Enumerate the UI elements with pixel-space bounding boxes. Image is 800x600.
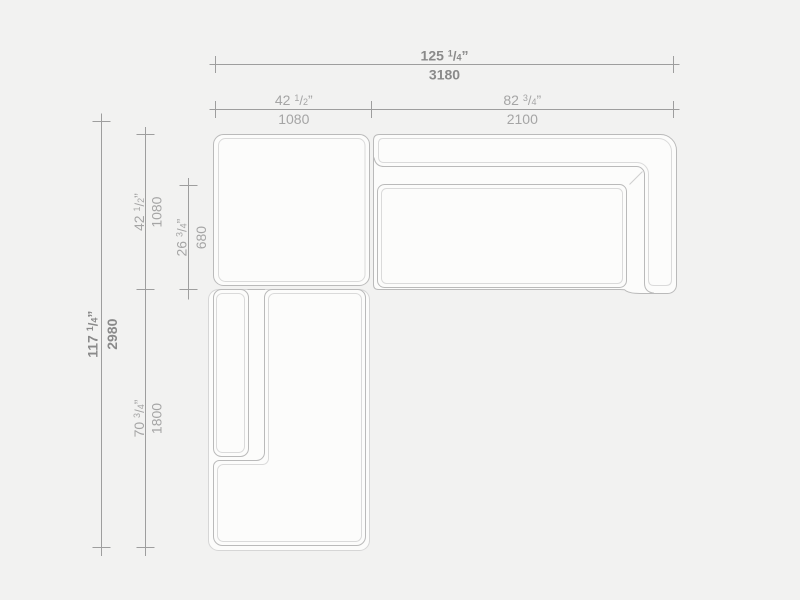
- svg-text:42 1/2”: 42 1/2”: [275, 92, 313, 108]
- svg-text:26 3/4”: 26 3/4”: [174, 218, 190, 256]
- svg-text:1080: 1080: [149, 196, 165, 227]
- svg-text:42 1/2”: 42 1/2”: [131, 193, 147, 231]
- svg-text:117 1/4”: 117 1/4”: [84, 311, 100, 358]
- svg-text:125 1/4”: 125 1/4”: [421, 48, 469, 64]
- svg-text:1800: 1800: [149, 403, 165, 434]
- svg-text:2100: 2100: [507, 111, 538, 127]
- svg-text:82 3/4”: 82 3/4”: [503, 92, 541, 108]
- svg-text:70 3/4”: 70 3/4”: [131, 399, 147, 437]
- svg-text:1080: 1080: [278, 111, 309, 127]
- svg-text:2980: 2980: [104, 318, 120, 349]
- svg-text:3180: 3180: [429, 67, 460, 83]
- svg-text:680: 680: [193, 226, 209, 250]
